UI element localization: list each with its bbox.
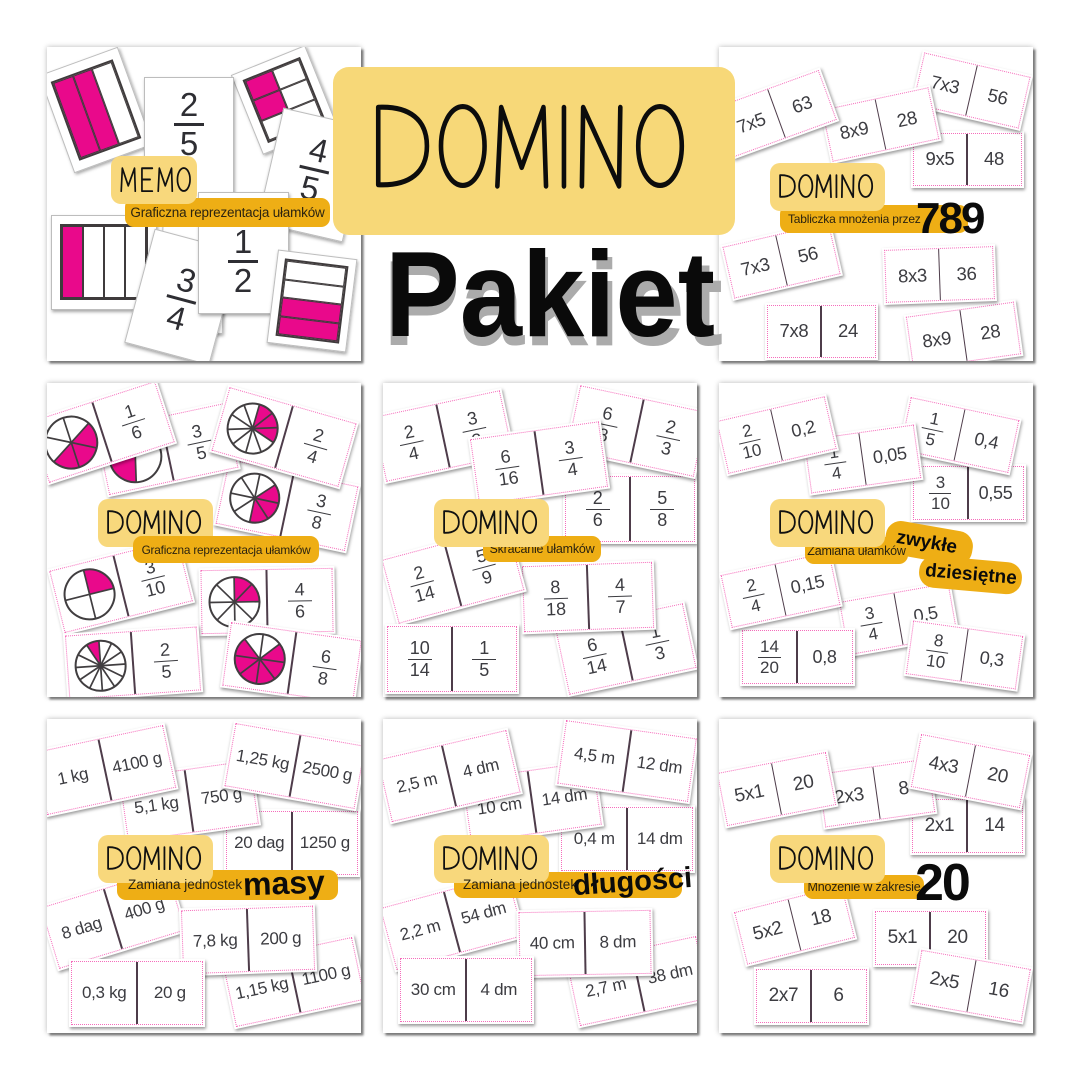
svg-text:Pakiet: Pakiet	[385, 238, 715, 362]
